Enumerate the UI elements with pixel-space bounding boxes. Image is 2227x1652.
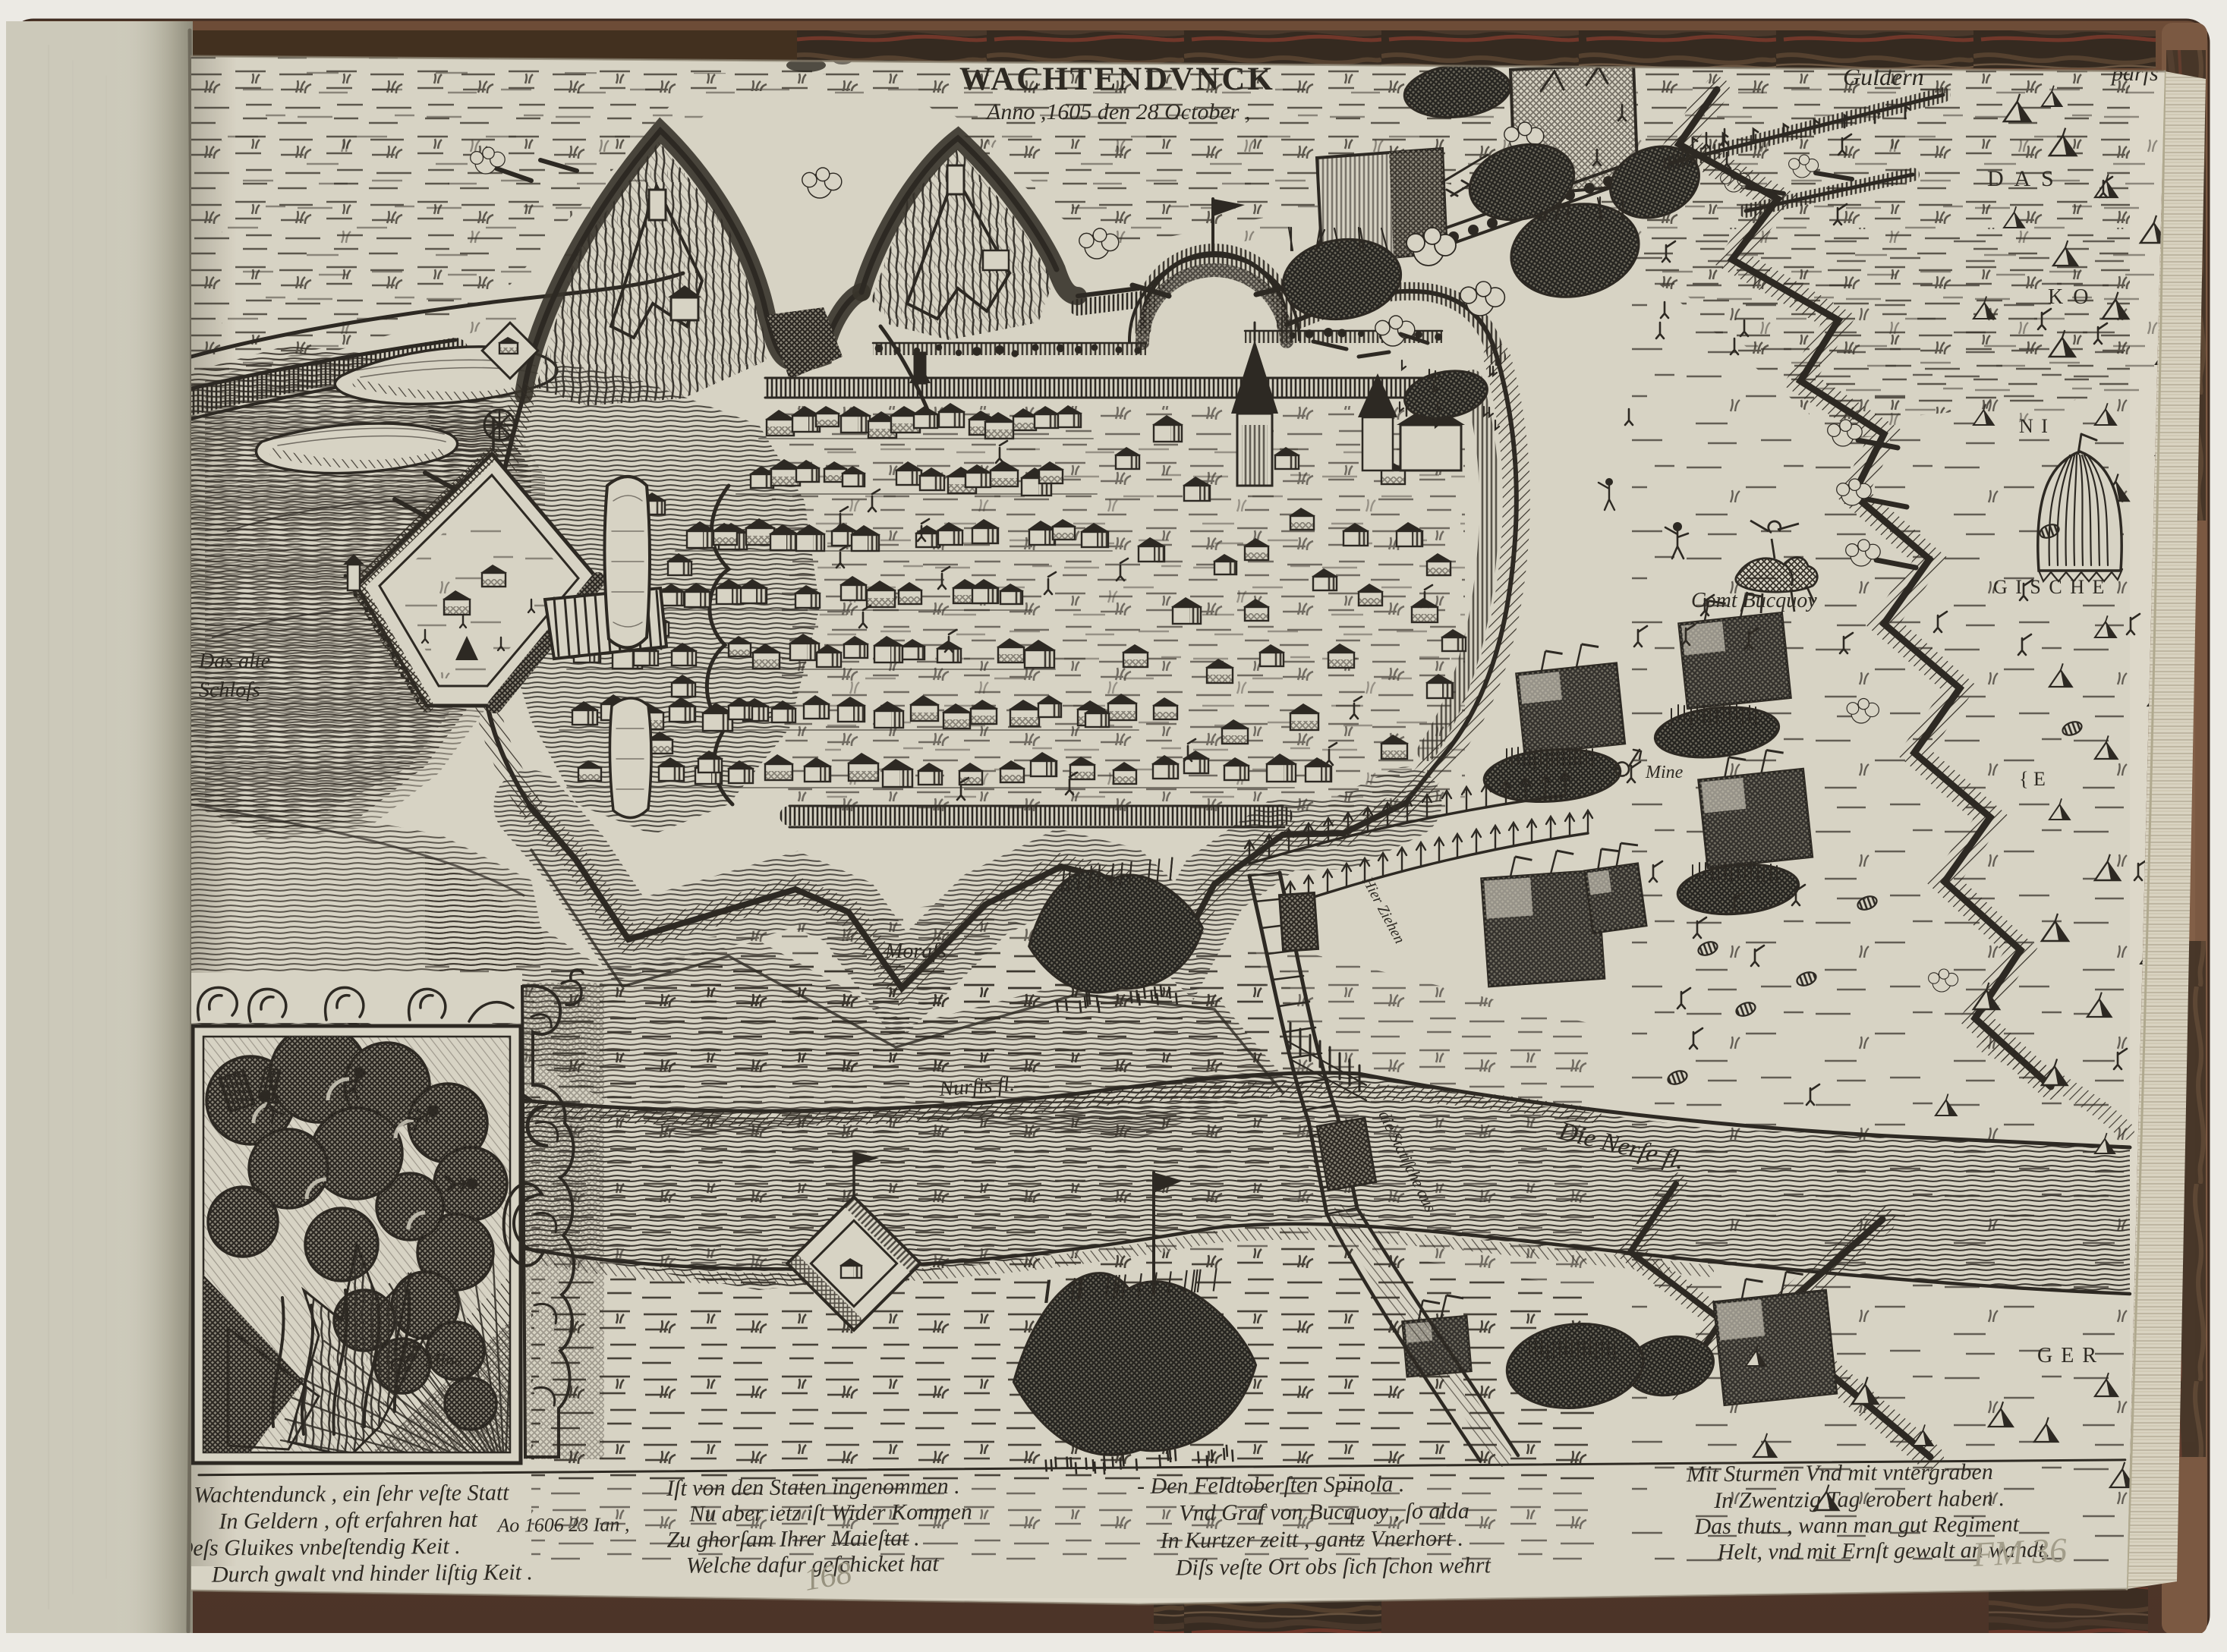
svg-text:D A S: D A S <box>1987 166 2057 191</box>
svg-text:N I: N I <box>2019 415 2049 437</box>
svg-text:In Kurtzer zeitt , gantz Vnerh: In Kurtzer zeitt , gantz Vnerhort . <box>1160 1526 1464 1553</box>
svg-text:Das alte: Das alte <box>198 650 270 673</box>
svg-text:Nu aber ietz iſt Wider Kommen: Nu aber ietz iſt Wider Kommen <box>688 1499 972 1527</box>
svg-text:Comt Bucquoy: Comt Bucquoy <box>1691 589 1817 612</box>
svg-text:Schloſs: Schloſs <box>199 678 260 702</box>
svg-text:Diſs veſte Ort obs ſich ſchon: Diſs veſte Ort obs ſich ſchon wehrt <box>1175 1553 1491 1580</box>
svg-text:Wachtendunck , ein ſehr veſte: Wachtendunck , ein ſehr veſte Statt <box>194 1481 509 1508</box>
svg-text:G E R: G E R <box>2037 1344 2098 1367</box>
svg-text:- Den Feldtoberſten Spinola .: - Den Feldtoberſten Spinola . <box>1137 1471 1405 1499</box>
svg-text:Moraſs: Moraſs <box>884 939 947 963</box>
svg-text:Das thuts , wann man gut Regim: Das thuts , wann man gut Regiment <box>1693 1512 2019 1539</box>
svg-text:Deſs Gluikes vnbeſtendig Keit: Deſs Gluikes vnbeſtendig Keit . <box>176 1534 461 1561</box>
svg-text:Ao 1606 23 Ian ,: Ao 1606 23 Ian , <box>496 1513 629 1536</box>
svg-text:WACHTENDVNCK: WACHTENDVNCK <box>959 61 1275 97</box>
svg-text:Vnd Graf von Bucquoy , ſo alda: Vnd Graf von Bucquoy , ſo alda <box>1179 1499 1469 1526</box>
svg-text:Zu ghorſam Ihrer Maieſtat .: Zu ghorſam Ihrer Maieſtat . <box>666 1525 919 1553</box>
svg-text:FM 36: FM 36 <box>1971 1531 2068 1574</box>
svg-text:In Geldern , oft erfahren hat: In Geldern , oft erfahren hat <box>218 1507 477 1534</box>
svg-text:Iſt von den Staten ingenommen: Iſt von den Staten ingenommen . <box>666 1474 960 1501</box>
svg-text:Mit Sturmen Vnd mit vntergrabe: Mit Sturmen Vnd mit vntergraben <box>1686 1459 1993 1487</box>
svg-text:Durch gwalt vnd hinder liſtig: Durch gwalt vnd hinder liſtig Keit . <box>211 1559 533 1587</box>
svg-text:Mine: Mine <box>1645 763 1684 782</box>
svg-text:Anno ,1605 den 28 October ,: Anno ,1605 den 28 October , <box>985 99 1250 124</box>
svg-text:G I S C H E: G I S C H E <box>1993 576 2106 598</box>
svg-text:In Zwentzig Tag erobert haben: In Zwentzig Tag erobert haben . <box>1713 1486 2005 1513</box>
svg-text:K O: K O <box>2048 285 2090 309</box>
svg-text:{ E: { E <box>2019 768 2046 790</box>
